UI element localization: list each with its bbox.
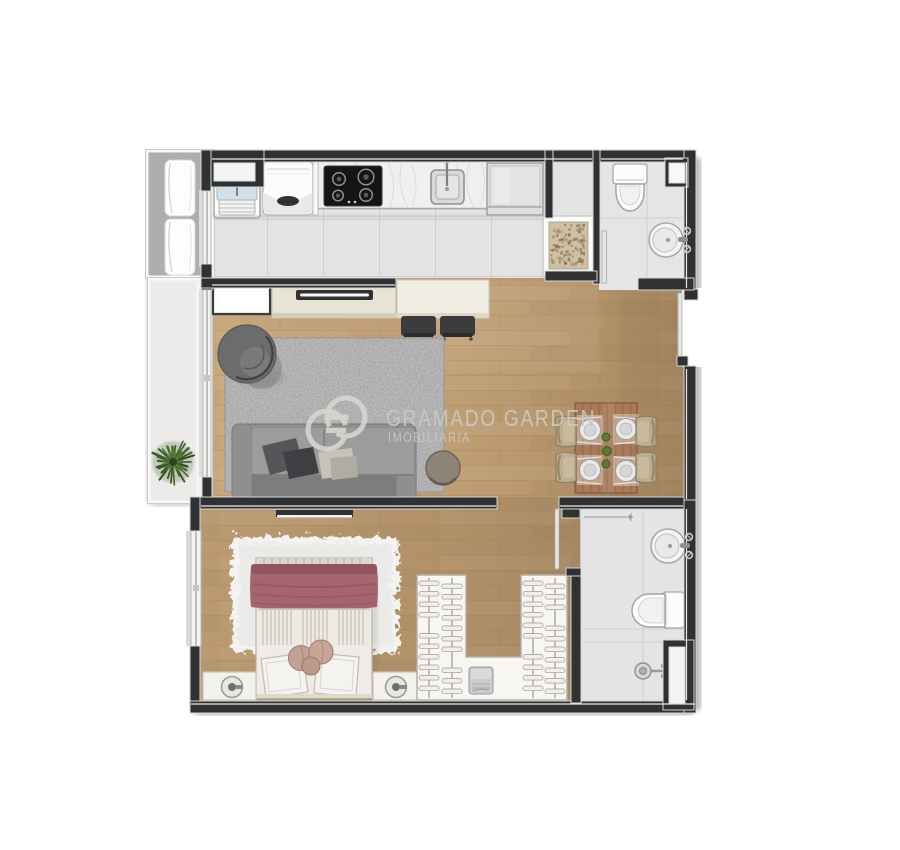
svg-text:GRAMADO GARDEN: GRAMADO GARDEN (386, 405, 596, 431)
svg-text:IMOBILIÁRIA: IMOBILIÁRIA (388, 430, 471, 445)
